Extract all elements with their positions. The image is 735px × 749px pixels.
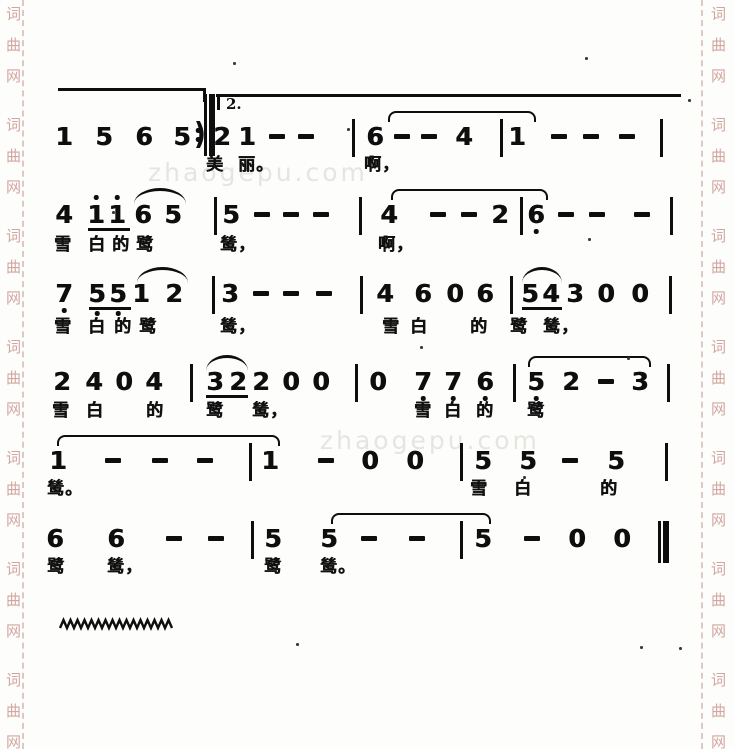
lyric-syllable: 鹭 xyxy=(206,402,224,421)
lyric-syllable: 鸶， xyxy=(543,318,579,337)
note-digit: 0 xyxy=(446,281,463,307)
lyric-syllable: 的 xyxy=(470,318,488,337)
octave-dot-below xyxy=(534,396,539,401)
barline xyxy=(520,197,523,235)
note-digit: 0 xyxy=(369,369,386,395)
barline xyxy=(500,119,503,157)
lyric-syllable: 鸶。 xyxy=(47,480,83,499)
lyric-syllable: 的 xyxy=(600,480,618,499)
note-digit: 5 xyxy=(521,281,538,307)
note-digit: 2 xyxy=(252,369,269,395)
dash-note xyxy=(105,458,121,463)
dash-note xyxy=(208,536,224,541)
note-digit: 6 xyxy=(366,124,383,150)
octave-dot-below xyxy=(116,311,121,316)
note-digit: 5 xyxy=(222,202,239,228)
octave-dot-below xyxy=(95,311,100,316)
note-digit: 5 xyxy=(527,369,544,395)
note-digit: 4 xyxy=(85,369,102,395)
side-watermark-char: 词 xyxy=(711,228,726,244)
beam-line xyxy=(522,307,562,310)
slur-arc xyxy=(206,355,248,371)
dash-note xyxy=(461,212,477,217)
scan-speck xyxy=(420,346,423,349)
side-watermark-char: 曲 xyxy=(6,148,21,164)
note-digit: 5 xyxy=(519,448,536,474)
note-digit: 2 xyxy=(229,369,246,395)
scan-speck xyxy=(679,647,682,650)
dash-note xyxy=(166,536,182,541)
dash-note xyxy=(254,212,270,217)
side-watermark-char: 曲 xyxy=(711,703,726,719)
center-watermark: zhaogepu.com xyxy=(320,426,540,455)
note-digit: 0 xyxy=(613,526,630,552)
scan-speck xyxy=(585,57,588,60)
dash-note xyxy=(394,134,410,139)
dash-note xyxy=(152,458,168,463)
dash-note xyxy=(589,212,605,217)
barline xyxy=(359,197,362,235)
note-digit: 5 xyxy=(264,526,281,552)
lyric-syllable: 雪 xyxy=(382,318,400,337)
dash-note xyxy=(421,134,437,139)
barline xyxy=(460,521,463,559)
note-digit: 7 xyxy=(444,369,461,395)
note-digit: 4 xyxy=(145,369,162,395)
barline xyxy=(460,443,463,481)
note-digit: 3 xyxy=(631,369,648,395)
lyric-syllable: 的 xyxy=(476,402,494,421)
lyric-syllable: 雪 xyxy=(54,236,72,255)
lyric-syllable: 鸶， xyxy=(220,318,256,337)
note-digit: 0 xyxy=(282,369,299,395)
side-watermark-char: 词 xyxy=(6,561,21,577)
volta-2-bracket-line xyxy=(216,94,681,97)
beam-line xyxy=(89,307,131,310)
lyric-syllable: 的 xyxy=(146,402,164,421)
side-watermark-char: 曲 xyxy=(6,370,21,386)
note-digit: 6 xyxy=(527,202,544,228)
volta-2-start-tick xyxy=(217,97,220,110)
side-watermark-char: 网 xyxy=(711,623,726,639)
note-digit: 1 xyxy=(238,124,255,150)
note-digit: 6 xyxy=(414,281,431,307)
dash-note xyxy=(551,134,567,139)
side-watermark-char: 词 xyxy=(6,450,21,466)
side-watermark-char: 网 xyxy=(711,734,726,749)
lyric-syllable: 鸶， xyxy=(252,402,288,421)
side-watermark-char: 网 xyxy=(6,623,21,639)
scan-speck xyxy=(523,476,526,479)
note-digit: 1 xyxy=(508,124,525,150)
octave-dot-above xyxy=(115,195,120,200)
lyric-syllable: 白 xyxy=(88,236,106,255)
barline xyxy=(190,364,193,402)
barline xyxy=(251,521,254,559)
scan-speck xyxy=(640,646,643,649)
barline xyxy=(667,364,670,402)
note-digit: 2 xyxy=(165,281,182,307)
lyric-syllable: 的 xyxy=(114,318,132,337)
side-watermark-char: 曲 xyxy=(711,370,726,386)
note-digit: 1 xyxy=(108,202,125,228)
note-digit: 5 xyxy=(95,124,112,150)
octave-dot-below xyxy=(534,229,539,234)
note-digit: 2 xyxy=(491,202,508,228)
dash-note xyxy=(558,212,574,217)
barline xyxy=(360,276,363,314)
lyric-syllable: 白 xyxy=(86,402,104,421)
barline xyxy=(249,443,252,481)
note-digit: 6 xyxy=(476,281,493,307)
note-digit: 5 xyxy=(474,526,491,552)
note-digit: 5 xyxy=(474,448,491,474)
note-digit: 4 xyxy=(376,281,393,307)
barline xyxy=(665,443,668,481)
side-watermark-char: 网 xyxy=(711,179,726,195)
tie-bracket xyxy=(528,356,651,367)
side-watermark-char: 词 xyxy=(711,339,726,355)
dash-note xyxy=(197,458,213,463)
dash-note xyxy=(430,212,446,217)
lyric-syllable: 鹭 xyxy=(527,402,545,421)
dash-note xyxy=(283,212,299,217)
note-digit: 3 xyxy=(221,281,238,307)
octave-dot-below xyxy=(451,396,456,401)
octave-dot-below xyxy=(421,396,426,401)
tie-bracket xyxy=(391,189,548,200)
dash-note xyxy=(313,212,329,217)
side-watermark-char: 词 xyxy=(6,672,21,688)
lyric-syllable: 白 xyxy=(514,480,532,499)
side-watermark-char: 曲 xyxy=(6,481,21,497)
lyric-syllable: 啊， xyxy=(364,156,400,175)
note-digit: 6 xyxy=(46,526,63,552)
lyric-syllable: 雪 xyxy=(414,402,432,421)
dash-note xyxy=(562,458,578,463)
dash-note xyxy=(583,134,599,139)
side-watermark-char: 网 xyxy=(711,290,726,306)
lyric-syllable: 鹭 xyxy=(264,558,282,577)
lyric-syllable: 白 xyxy=(444,402,462,421)
side-watermark-char: 曲 xyxy=(6,703,21,719)
tie-bracket xyxy=(331,513,491,524)
note-digit: 4 xyxy=(55,202,72,228)
side-watermark-char: 曲 xyxy=(711,592,726,608)
note-digit: 0 xyxy=(361,448,378,474)
side-watermark-char: 网 xyxy=(711,401,726,417)
dash-note xyxy=(524,536,540,541)
note-digit: 0 xyxy=(115,369,132,395)
dash-note xyxy=(316,291,332,296)
side-watermark-char: 词 xyxy=(711,117,726,133)
note-digit: 2 xyxy=(562,369,579,395)
side-watermark-char: 词 xyxy=(6,6,21,22)
dash-note xyxy=(318,458,334,463)
repeat-dot xyxy=(196,137,201,142)
lyric-syllable: 雪 xyxy=(54,318,72,337)
side-watermark-char: 曲 xyxy=(711,37,726,53)
side-watermark-char: 曲 xyxy=(6,37,21,53)
side-watermark-char: 词 xyxy=(711,672,726,688)
lyric-syllable: 雪 xyxy=(52,402,70,421)
scan-speck xyxy=(588,238,591,241)
scan-speck xyxy=(688,99,691,102)
barline xyxy=(214,197,217,235)
dash-note xyxy=(298,134,314,139)
barline xyxy=(670,197,673,235)
lyric-syllable: 鹭 xyxy=(47,558,65,577)
lyric-syllable: 的 xyxy=(112,236,130,255)
dash-note xyxy=(253,291,269,296)
octave-dot-below xyxy=(62,308,67,313)
repeat-barline xyxy=(204,94,207,156)
side-watermark-char: 词 xyxy=(6,228,21,244)
lyric-syllable: 鹭 xyxy=(139,318,157,337)
barline xyxy=(510,276,513,314)
lyric-syllable: 美 xyxy=(206,156,224,175)
side-watermark-char: 曲 xyxy=(711,481,726,497)
lyric-syllable: 丽。 xyxy=(238,156,274,175)
note-digit: 0 xyxy=(406,448,423,474)
note-digit: 0 xyxy=(597,281,614,307)
note-digit: 1 xyxy=(49,448,66,474)
octave-dot-below xyxy=(483,396,488,401)
side-watermark-char: 网 xyxy=(6,290,21,306)
dash-note xyxy=(361,536,377,541)
note-digit: 1 xyxy=(55,124,72,150)
note-digit: 6 xyxy=(476,369,493,395)
note-digit: 5 xyxy=(164,202,181,228)
note-digit: 1 xyxy=(132,281,149,307)
scan-speck xyxy=(296,643,299,646)
scan-speck xyxy=(347,128,350,131)
volta-label: 2. xyxy=(226,95,242,113)
note-digit: 3 xyxy=(206,369,223,395)
note-digit: 7 xyxy=(55,281,72,307)
note-digit: 1 xyxy=(87,202,104,228)
wavy-line xyxy=(60,618,182,634)
note-digit: 0 xyxy=(568,526,585,552)
side-watermark-char: 网 xyxy=(711,512,726,528)
barline xyxy=(212,276,215,314)
side-watermark-char: 词 xyxy=(711,450,726,466)
tie-bracket xyxy=(388,111,536,122)
lyric-syllable: 鸶。 xyxy=(320,558,356,577)
side-watermark-char: 词 xyxy=(711,6,726,22)
note-digit: 6 xyxy=(107,526,124,552)
octave-dot-above xyxy=(94,195,99,200)
final-barline xyxy=(663,521,669,563)
note-digit: 5 xyxy=(173,124,190,150)
lyric-syllable: 鹭 xyxy=(510,318,528,337)
scan-speck xyxy=(112,211,115,214)
slur-arc xyxy=(134,188,186,204)
beam-line xyxy=(206,395,248,398)
slur-arc xyxy=(522,267,562,283)
side-watermark-char: 词 xyxy=(6,339,21,355)
watermark-dashed-line-left xyxy=(22,0,24,749)
dash-note xyxy=(598,379,614,384)
lyric-syllable: 鸶， xyxy=(107,558,143,577)
scan-speck xyxy=(233,62,236,65)
note-digit: 5 xyxy=(607,448,624,474)
repeat-dot xyxy=(196,128,201,133)
barline xyxy=(669,276,672,314)
side-watermark-char: 网 xyxy=(711,68,726,84)
scan-speck xyxy=(627,357,630,360)
note-digit: 1 xyxy=(261,448,278,474)
note-digit: 4 xyxy=(542,281,559,307)
lyric-syllable: 鹭 xyxy=(136,236,154,255)
barline xyxy=(355,364,358,402)
first-ending-line xyxy=(58,88,205,91)
note-digit: 5 xyxy=(109,281,126,307)
dash-note xyxy=(269,134,285,139)
side-watermark-char: 曲 xyxy=(711,259,726,275)
lyric-syllable: 啊， xyxy=(378,236,414,255)
barline xyxy=(352,119,355,157)
barline xyxy=(513,364,516,402)
note-digit: 5 xyxy=(88,281,105,307)
side-watermark-char: 网 xyxy=(6,179,21,195)
note-digit: 5 xyxy=(320,526,337,552)
barline xyxy=(660,119,663,157)
side-watermark-char: 网 xyxy=(6,68,21,84)
side-watermark-char: 网 xyxy=(6,401,21,417)
side-watermark-char: 词 xyxy=(711,561,726,577)
side-watermark-char: 曲 xyxy=(711,148,726,164)
dash-note xyxy=(409,536,425,541)
final-barline xyxy=(658,521,661,563)
note-digit: 7 xyxy=(414,369,431,395)
note-digit: 4 xyxy=(455,124,472,150)
lyric-syllable: 白 xyxy=(410,318,428,337)
note-digit: 0 xyxy=(631,281,648,307)
side-watermark-char: 网 xyxy=(6,734,21,749)
lyric-syllable: 白 xyxy=(88,318,106,337)
beam-line xyxy=(88,228,130,231)
note-digit: 6 xyxy=(134,202,151,228)
slur-arc xyxy=(137,267,188,283)
tie-bracket xyxy=(57,435,280,446)
note-digit: 6 xyxy=(135,124,152,150)
lyric-syllable: 雪 xyxy=(470,480,488,499)
side-watermark-char: 词 xyxy=(6,117,21,133)
lyric-syllable: 鸶， xyxy=(220,236,256,255)
note-digit: 3 xyxy=(566,281,583,307)
watermark-dashed-line-right xyxy=(701,0,703,749)
note-digit: 0 xyxy=(312,369,329,395)
note-digit: 2 xyxy=(53,369,70,395)
side-watermark-char: 曲 xyxy=(6,259,21,275)
sheet-music-page: 词词曲曲网网词词曲曲网网词词曲曲网网词词曲曲网网词词曲曲网网词词曲曲网网词词曲曲… xyxy=(0,0,735,749)
dash-note xyxy=(634,212,650,217)
dash-note xyxy=(283,291,299,296)
side-watermark-char: 曲 xyxy=(6,592,21,608)
dash-note xyxy=(619,134,635,139)
note-digit: 2 xyxy=(213,124,230,150)
side-watermark-char: 网 xyxy=(6,512,21,528)
note-digit: 4 xyxy=(380,202,397,228)
